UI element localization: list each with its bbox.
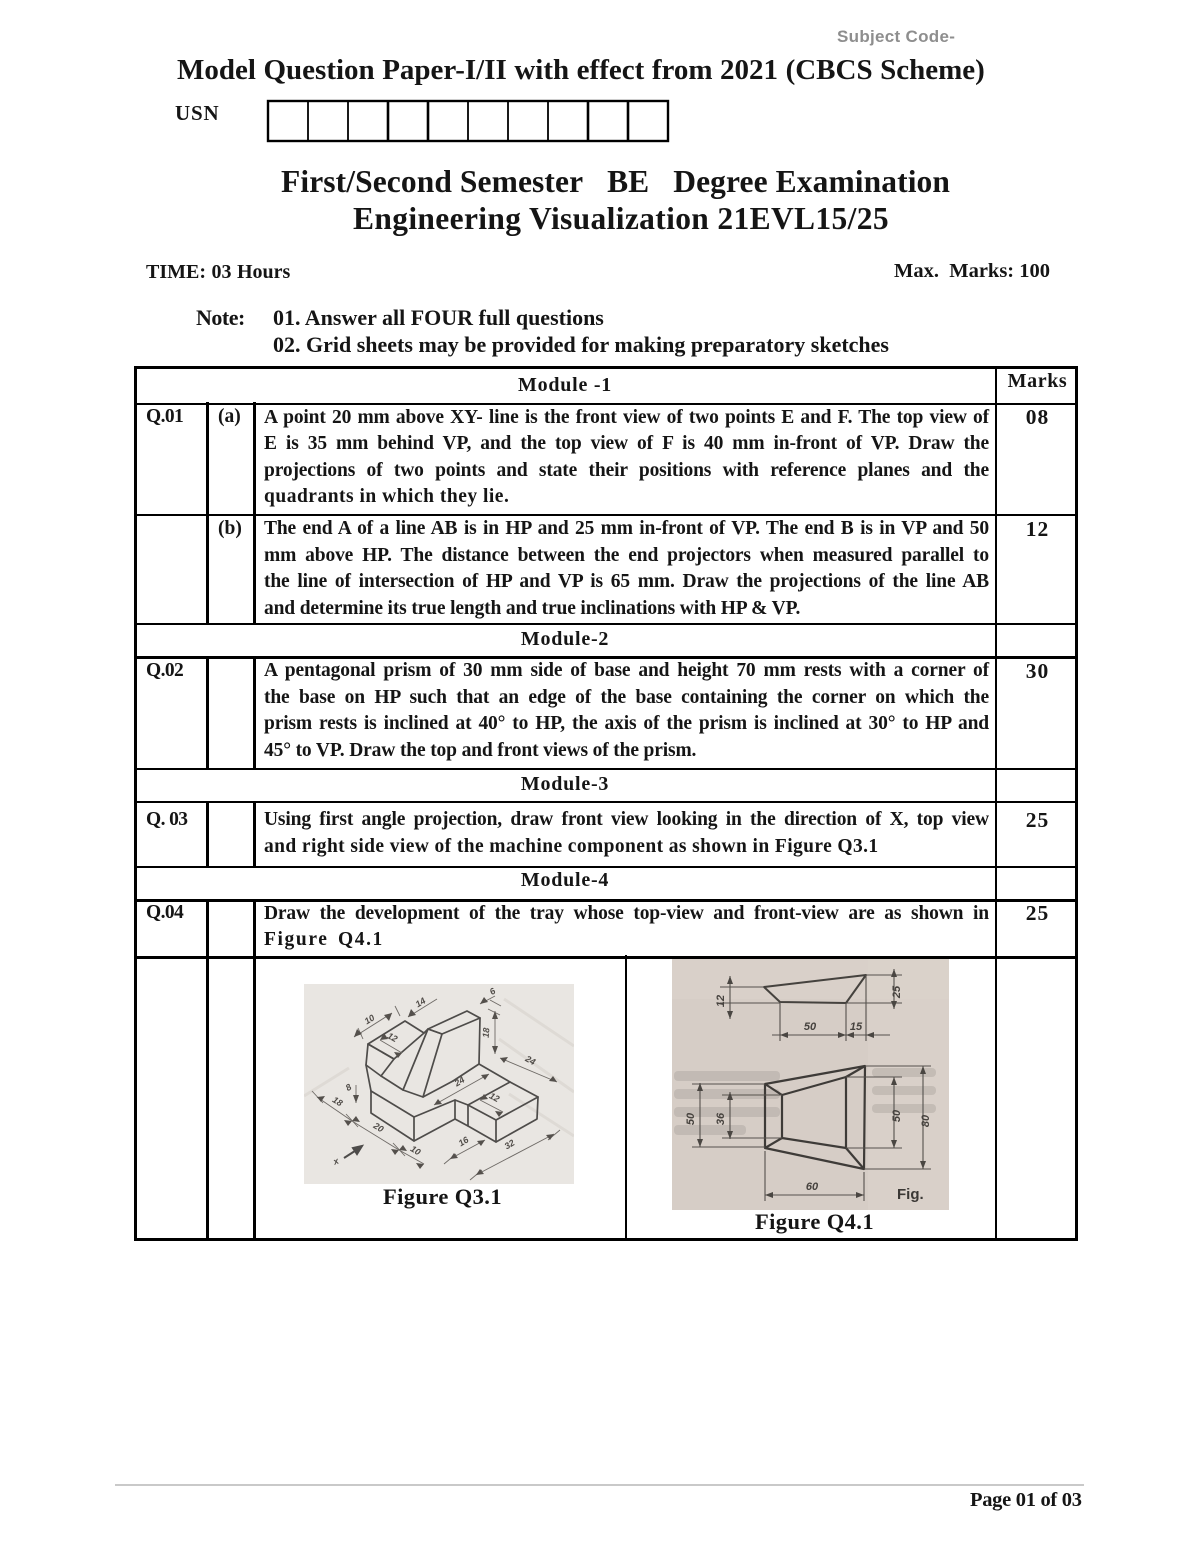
svg-text:12: 12 xyxy=(715,995,727,1007)
svg-text:18: 18 xyxy=(481,1027,492,1038)
svg-text:25: 25 xyxy=(891,985,903,999)
svg-text:80: 80 xyxy=(920,1114,932,1127)
svg-text:Fig.: Fig. xyxy=(897,1186,924,1203)
svg-text:50: 50 xyxy=(891,1109,903,1122)
svg-text:50: 50 xyxy=(804,1021,817,1033)
svg-text:15: 15 xyxy=(850,1021,863,1033)
svg-text:36: 36 xyxy=(715,1112,727,1125)
svg-text:50: 50 xyxy=(685,1112,697,1125)
svg-text:60: 60 xyxy=(806,1181,819,1193)
